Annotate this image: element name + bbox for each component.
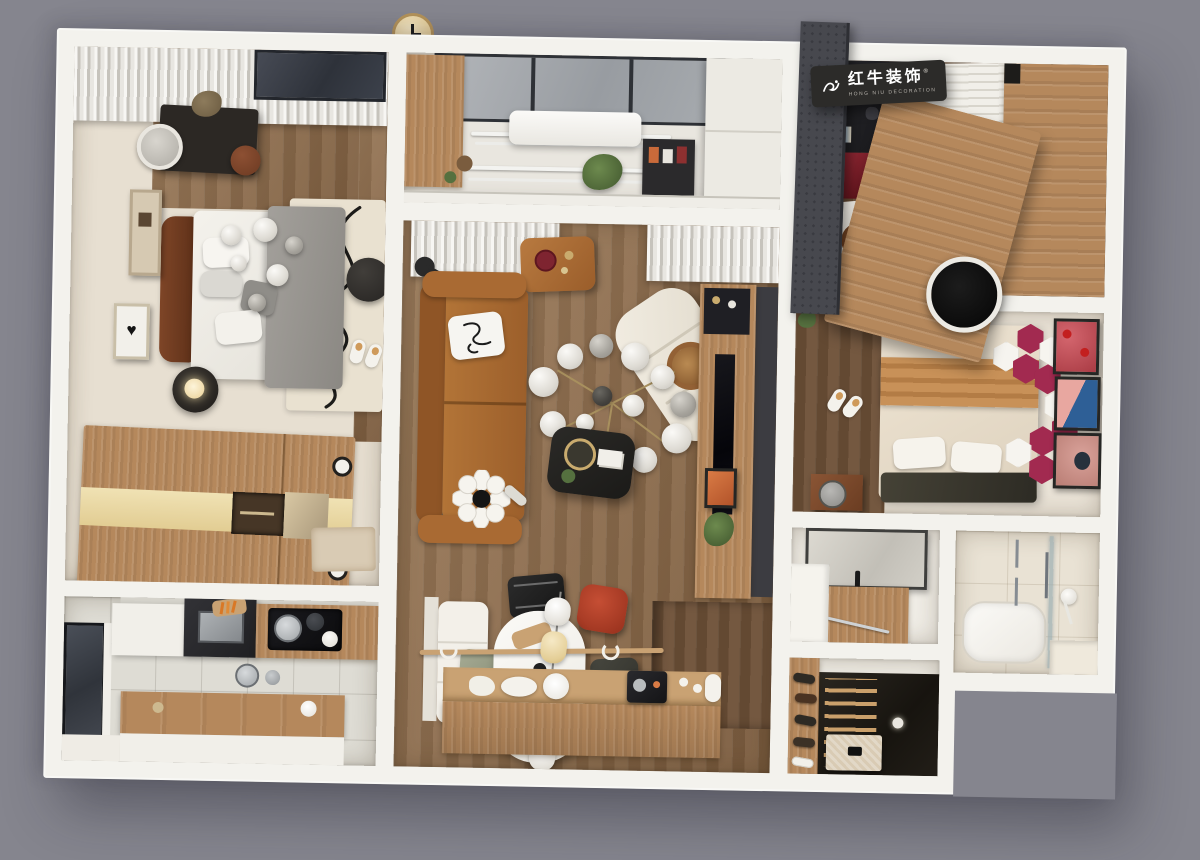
shower-tray [962,601,1047,665]
cartoon-art-3 [1053,432,1102,489]
pendant-bead [543,596,572,627]
phone-on-mat [848,747,862,756]
balcony [404,52,783,209]
art-eye [1080,348,1089,357]
coffee-table [545,425,636,501]
tv-shelf [704,288,751,335]
shoe [794,693,817,704]
sideboard [442,667,722,758]
living-curtain-right [646,225,779,283]
cabinet-seam [705,130,781,133]
towel-handle [1015,540,1019,568]
wardrobe-knob [332,456,353,477]
chandelier-globe [670,391,696,417]
cartoon-art-2 [1054,376,1101,431]
console-plant [704,512,735,547]
kitchen-window-sill [102,623,112,735]
pot [265,670,280,685]
brand-subtitle: HONG NIU DECORATION [848,87,936,98]
pan [306,613,324,631]
cup [693,684,702,693]
wardrobe-seam [277,534,282,586]
speaker [818,480,847,509]
entry-hall [787,658,939,777]
coffee-machine-dial [633,679,646,692]
orange-art [704,468,737,509]
balcony-cabinet-right [704,58,783,205]
wardrobe-handle [240,511,274,516]
kitchen [62,596,379,766]
building-notch [953,691,1117,800]
brand-text-block: 红牛装饰® HONG NIU DECORATION [848,68,937,97]
wardrobe-corner-shadow [1004,63,1020,83]
coffee-machine-button [653,681,660,688]
window-mullion [628,59,633,115]
chandelier-globe [622,394,644,416]
bed-2-pillow [950,441,1002,475]
balcony-plant [582,154,623,191]
tv-console [695,284,757,599]
face-print [447,311,506,361]
chandelier-globe [661,423,692,454]
downlight [892,717,903,728]
drying-rack-panel [509,110,642,146]
kitchen-corner-counter [62,734,120,761]
gold-cup [564,251,573,260]
leather-side-cart [520,236,596,292]
island-counter-front [120,733,344,765]
wardrobe-handle-block [231,492,285,536]
pitcher [705,674,722,702]
towel-handle [1015,578,1019,606]
bed-2-pillow [892,436,946,470]
art-shape [1074,452,1090,470]
gold-tray [562,437,598,473]
sofa-seam [444,401,526,406]
balcony-cabinet-left [404,54,464,187]
coffee-table-plant [561,468,577,484]
brand-name: 红牛装饰® [848,68,937,89]
vanity-cabinet [828,586,909,643]
serving-board [469,676,495,696]
pot [235,663,259,687]
vanity-counter [790,564,829,643]
sofa-armrest [422,271,526,299]
chandelier-globe [650,365,674,389]
chandelier-globe [589,334,613,358]
wall-art [128,189,162,276]
plate [534,249,557,272]
pouf [346,257,389,302]
gold-cup [561,267,568,274]
heart-icon: ♥ [126,320,136,339]
window-mullion [531,58,536,114]
chandelier-globe [528,367,559,398]
coffee-table-books [597,449,623,468]
bedroom-1-window [254,50,387,102]
balcony-shelf [642,139,695,196]
bedroom-1: ♥ [65,46,389,586]
doormat [826,734,883,771]
cartoon-art-1 [1053,318,1100,375]
pendant-bead [539,630,568,665]
coffee-machine [627,671,668,704]
wall-art-shape [138,213,151,227]
render-canvas: { "logo": { "text": "红牛装饰", "subtext": "… [0,0,1200,860]
face-print-pillow [447,311,506,361]
counter-white [112,603,185,656]
carrot [231,601,237,613]
brand-sign: 红牛装饰® HONG NIU DECORATION [810,60,947,108]
door-rug [311,527,376,572]
living-dining-room [394,220,780,773]
book-spine [677,146,687,163]
wardrobe-seam [281,434,286,496]
pot [274,614,303,643]
bed-pillow [200,271,242,298]
oval-platter [501,676,537,697]
apartment-floor-plan: ♥ [43,28,1127,797]
bed-headboard [159,216,196,363]
carrot [220,602,225,614]
chandelier-globe [557,343,583,369]
plant-leaf [798,312,816,328]
book-spine [663,149,673,163]
bed-pillow [214,309,263,346]
daisy-pillow [452,469,511,528]
heart-art: ♥ [113,303,150,360]
carrot [226,601,230,613]
kitchen-window [62,622,106,741]
bull-icon [821,76,842,97]
bed-2-throw [881,473,1037,503]
bath-step [1049,640,1098,675]
chandelier-globe [621,342,650,371]
art-eye [1062,329,1071,338]
chair-frame-line [514,581,558,587]
registered-mark: ® [923,68,931,74]
vanity-room [790,528,940,645]
bathroom [953,531,1100,676]
book-spine [649,147,659,163]
sideboard-front [442,701,721,758]
nightstand-2 [810,474,863,511]
